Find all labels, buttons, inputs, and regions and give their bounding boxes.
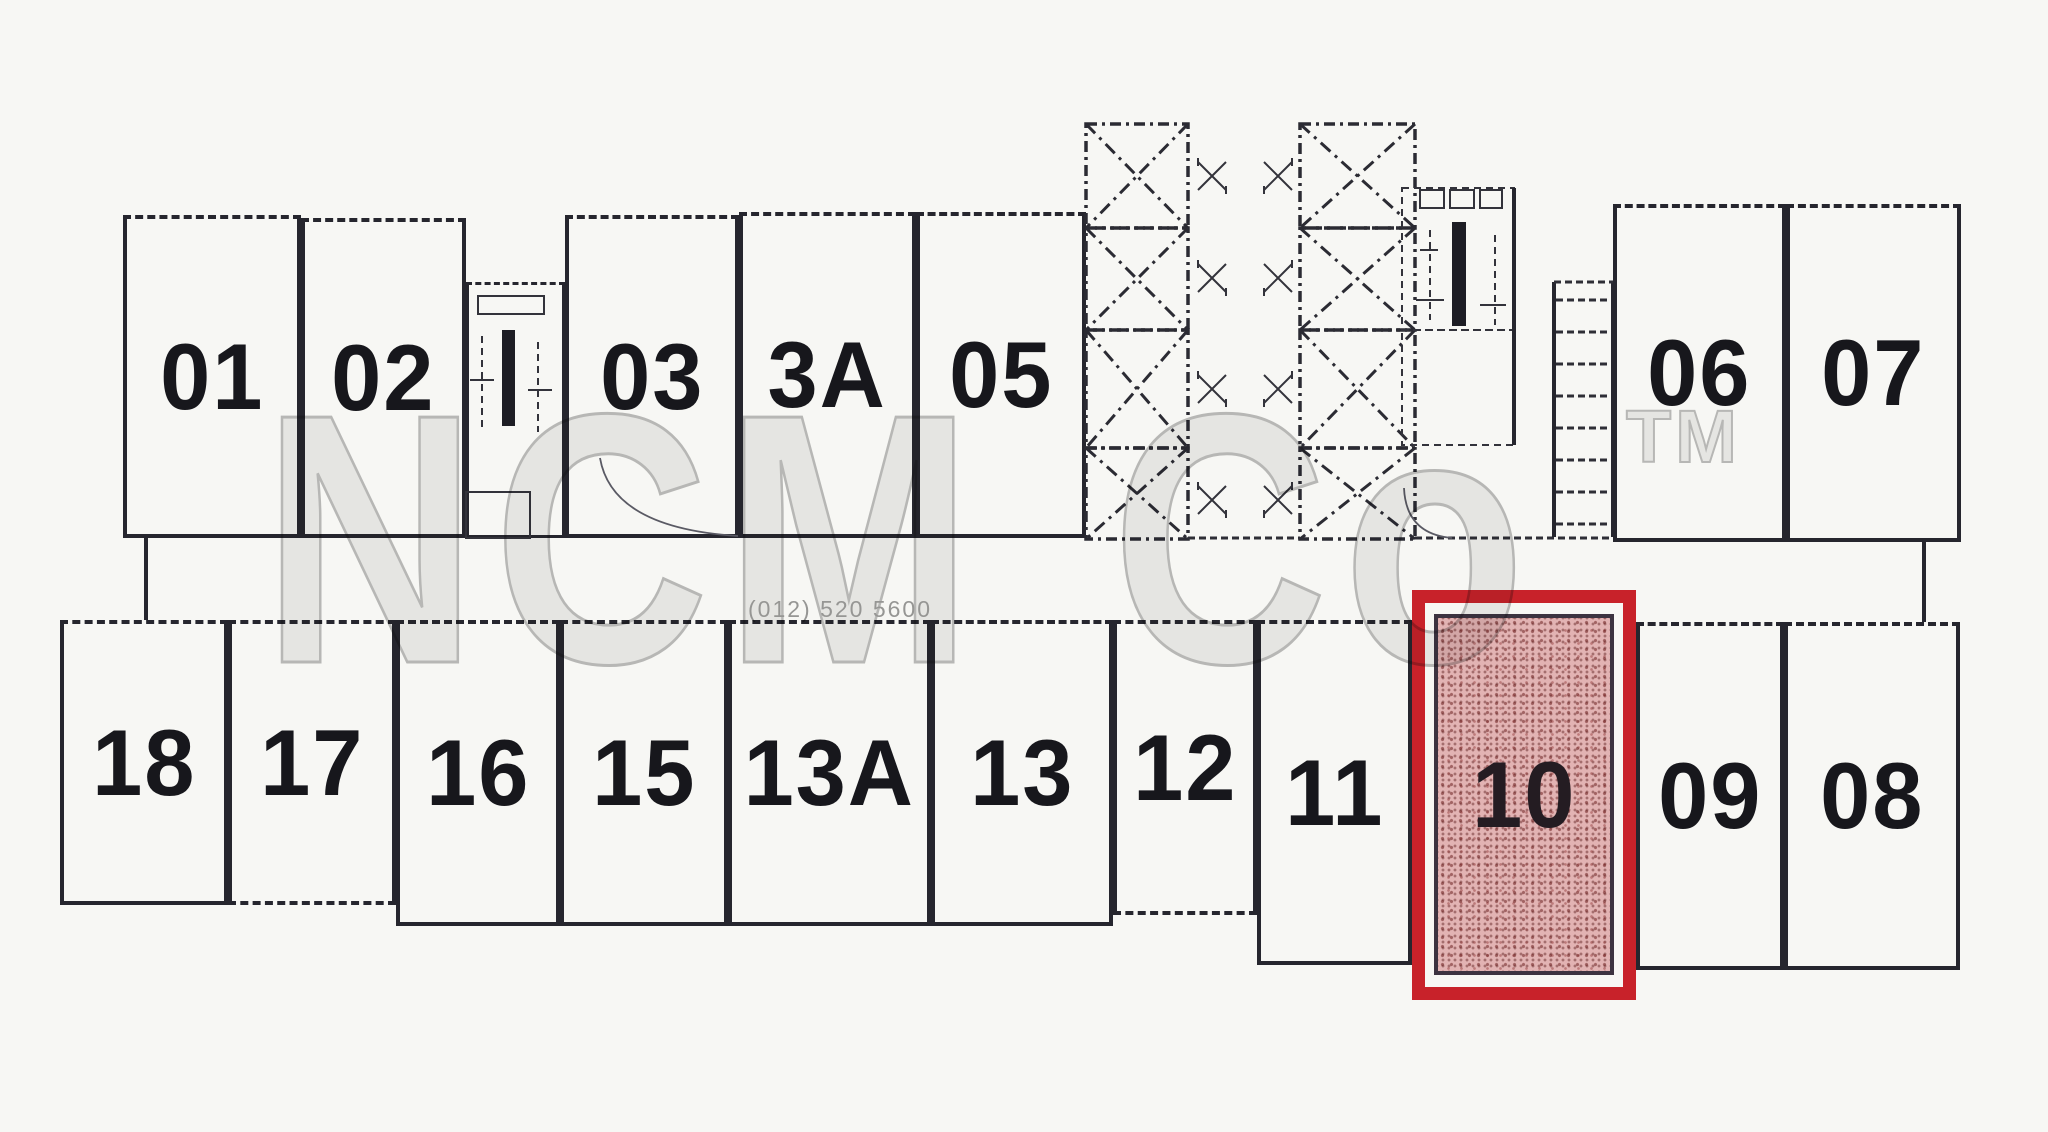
unit-label: 01 [160, 330, 264, 424]
unit-label: 17 [260, 716, 364, 810]
unit-11: 11 [1257, 620, 1412, 965]
watermark-phone: (012) 520 5600 [748, 596, 932, 623]
toilet-rooms [1402, 188, 1514, 445]
unit-label: 18 [92, 716, 196, 810]
elevator-door-icon [1198, 371, 1226, 407]
elevator-bank-right [1300, 124, 1415, 539]
unit-07: 07 [1786, 204, 1961, 542]
unit-01: 01 [123, 215, 301, 538]
unit-17: 17 [228, 620, 396, 905]
elevator-shaft-x-icon [1086, 448, 1188, 539]
unit-03: 03 [565, 215, 739, 538]
unit-label: 13 [970, 726, 1074, 820]
elevator-shaft-icon [1086, 124, 1188, 228]
unit-18: 18 [60, 620, 228, 905]
elevator-doors [1198, 158, 1292, 518]
elevator-door-icon [1198, 482, 1226, 518]
elevator-door-icon [1264, 158, 1292, 194]
elevator-door-icon [1264, 482, 1292, 518]
elevator-shaft-x-icon [1086, 124, 1188, 228]
unit-02: 02 [301, 218, 466, 538]
elevator-shaft-x-icon [1300, 448, 1415, 539]
elevator-shaft-icon [1086, 448, 1188, 539]
elevator-shaft-x-icon [1300, 124, 1415, 228]
unit-label: 06 [1647, 326, 1751, 420]
elevator-shaft-icon [1300, 228, 1415, 330]
elevator-shaft-x-icon [1086, 228, 1188, 330]
elevator-shaft-x-icon [1300, 330, 1415, 448]
highlight-box-unit-10: 10 [1412, 590, 1636, 1000]
unit-3A: 3A [739, 212, 916, 538]
elevator-shaft-icon [1300, 124, 1415, 228]
elevator-door-icon [1264, 371, 1292, 407]
unit-label: 16 [426, 726, 530, 820]
door-swing-icon [1404, 488, 1452, 538]
unit-05: 05 [916, 212, 1086, 538]
unit-label: 07 [1821, 326, 1925, 420]
utility-room [466, 282, 565, 538]
unit-06: 06 [1613, 204, 1786, 542]
unit-12: 12 [1113, 620, 1257, 915]
elevator-shaft-x-icon [1300, 228, 1415, 330]
elevator-shaft-icon [1300, 448, 1415, 539]
toilet-room [1402, 188, 1514, 330]
elevator-shaft-icon [1300, 330, 1415, 448]
unit-label: 09 [1658, 749, 1762, 843]
unit-label: 08 [1820, 749, 1924, 843]
unit-label: 3A [768, 328, 887, 422]
stair-steps-icon [1556, 300, 1611, 524]
unit-16: 16 [396, 620, 560, 926]
unit-08: 08 [1784, 622, 1960, 970]
unit-label: 11 [1285, 746, 1384, 840]
unit-label: 02 [331, 331, 435, 425]
unit-label: 15 [592, 726, 696, 820]
service-room [1402, 330, 1514, 445]
elevator-door-icon [1264, 260, 1292, 296]
unit-label: 12 [1133, 721, 1237, 815]
elevator-shaft-x-icon [1086, 330, 1188, 448]
unit-13: 13 [931, 620, 1113, 926]
unit-label: 05 [949, 328, 1053, 422]
elevator-door-icon [1198, 158, 1226, 194]
unit-label: 10 [1472, 748, 1576, 842]
floor-plan-canvas: 01 02 03 3A 05 06 07 18 17 16 15 13A 13 … [0, 0, 2048, 1132]
elevator-shaft-icon [1086, 228, 1188, 330]
unit-15: 15 [560, 620, 728, 926]
unit-label: 13A [744, 726, 915, 820]
unit-label: 03 [600, 330, 704, 424]
elevator-door-icon [1198, 260, 1226, 296]
elevator-shaft-icon [1086, 330, 1188, 448]
staircase [1554, 282, 1613, 537]
unit-09: 09 [1636, 622, 1784, 970]
unit-13A: 13A [728, 620, 931, 926]
stair-wall [1554, 282, 1613, 537]
unit-10: 10 [1434, 614, 1614, 975]
elevator-bank-left [1086, 124, 1188, 539]
toilet-fixtures-icon [1416, 190, 1506, 326]
